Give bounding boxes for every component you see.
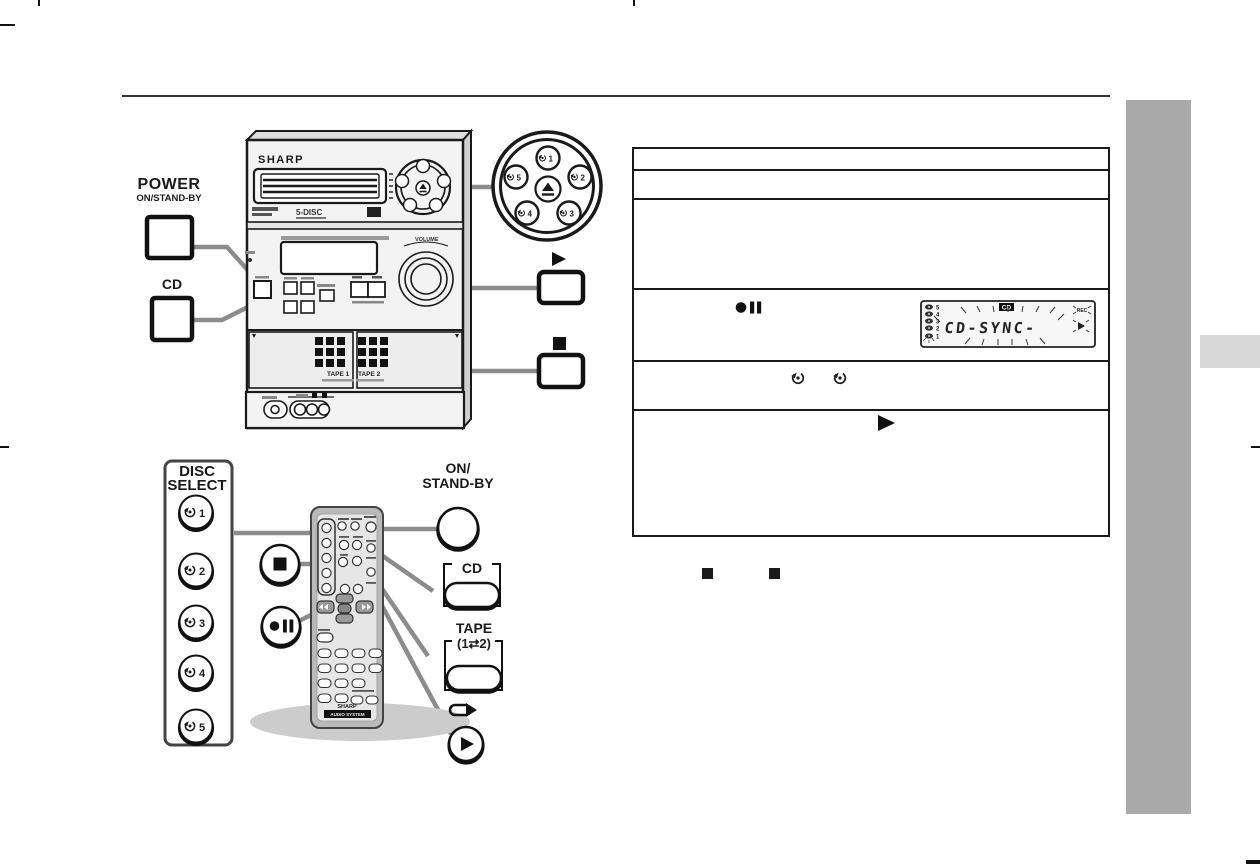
- remote-brand: SHARP: [337, 704, 357, 710]
- play-icon: [877, 415, 896, 431]
- cd-callout-label: CD: [147, 277, 197, 292]
- disc-select-title: DISC SELECT: [163, 465, 231, 493]
- cd-remote-label: CD: [450, 561, 494, 576]
- record-pause-icon: [735, 300, 763, 315]
- tape-remote-label: TAPE (1⇄2): [434, 621, 514, 651]
- unit-cd-button: [284, 282, 297, 294]
- stop-icon: [769, 568, 780, 579]
- stop-callout: [539, 337, 583, 387]
- lcd-text: CD-SYNC-: [944, 319, 1038, 337]
- svg-text:5: 5: [199, 722, 205, 734]
- tape-play-callout: [449, 703, 483, 763]
- on-standby-callout: [438, 508, 478, 550]
- svg-text:2: 2: [199, 566, 205, 578]
- instruction-table: 5 4 3 2 1 CD CD-SYNC-: [632, 147, 1110, 537]
- manual-page: SHARP: [0, 0, 1260, 865]
- remote-power-button: [366, 522, 376, 532]
- svg-text:4: 4: [199, 668, 206, 680]
- unit-play-button: [351, 282, 368, 297]
- remote-tape-button: [367, 568, 375, 576]
- tape1-label: TAPE 1: [327, 371, 350, 378]
- unit-disc-badge: 5-DISC: [296, 208, 322, 217]
- cd-logo-badge: [367, 207, 381, 217]
- tape-direction-icon: [450, 705, 467, 715]
- phones-jack: [271, 406, 279, 414]
- on-standby-label: ON/ STAND-BY: [414, 461, 502, 491]
- stop-icon: [274, 558, 287, 571]
- disc-icon: [832, 370, 848, 386]
- model-text-blur: [281, 236, 389, 240]
- lcd-display: 5 4 3 2 1 CD CD-SYNC-: [920, 300, 1096, 348]
- remote-stop-button: [338, 557, 347, 566]
- stop-icon: [702, 568, 713, 579]
- svg-text:3: 3: [199, 618, 205, 630]
- remote-volume-down: [351, 696, 363, 704]
- svg-text:1: 1: [199, 508, 205, 520]
- remote-stop-callout: [261, 545, 299, 585]
- unit-stop-button: [368, 282, 385, 297]
- remote-rec-pause-callout: [262, 607, 300, 647]
- remote-rec-pause-button: [353, 584, 362, 593]
- svg-text:CD: CD: [1002, 305, 1012, 312]
- unit-brand: SHARP: [258, 154, 304, 166]
- play-icon: [552, 252, 566, 266]
- power-callout-button: [147, 217, 192, 258]
- disc-tray: [254, 169, 393, 203]
- cd-callout-button: [152, 298, 192, 340]
- front-panel-illustration: SHARP: [245, 131, 471, 428]
- svg-text:4: 4: [528, 210, 533, 219]
- svg-text:1: 1: [549, 155, 554, 164]
- svg-text:5: 5: [517, 174, 522, 183]
- disc-pad-callout: 1 2 3 4 5: [493, 132, 601, 240]
- svg-text:2: 2: [581, 174, 586, 183]
- stop-icon: [553, 337, 566, 350]
- remote-play-button: [352, 556, 361, 565]
- play-callout: [539, 252, 583, 303]
- tape2-label: TAPE 2: [358, 371, 381, 378]
- disc-select-panel: 1 2 3 4: [165, 461, 232, 745]
- remote-sensor: [320, 290, 334, 301]
- svg-text:REC: REC: [1077, 308, 1088, 314]
- power-callout-label: POWER ON/STAND-BY: [130, 177, 208, 204]
- jack-panel: [246, 392, 464, 428]
- svg-text:3: 3: [570, 210, 575, 219]
- disc-icon: [790, 370, 806, 386]
- remote-cd-button: [367, 544, 375, 552]
- unit-display: [281, 242, 377, 274]
- svg-text:AUDIO SYSTEM: AUDIO SYSTEM: [330, 712, 365, 717]
- unit-power-button: [254, 281, 271, 298]
- timer-indicator: [248, 258, 252, 262]
- record-pause-icon: [270, 621, 280, 631]
- remote-volume-up: [366, 696, 378, 704]
